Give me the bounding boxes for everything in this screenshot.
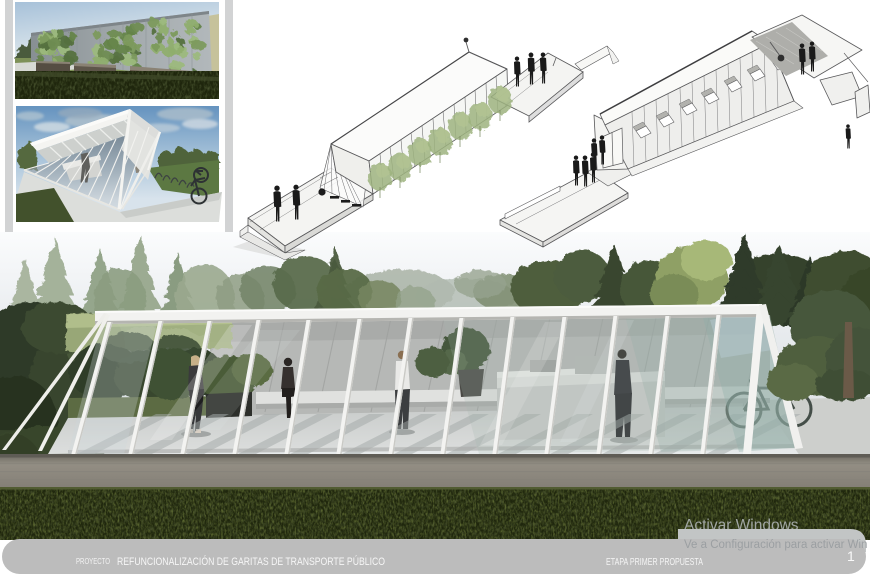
svg-text:PROYECTO: PROYECTO [76,556,110,566]
svg-text:1: 1 [847,548,855,564]
svg-text:REFUNCIONALIZACIÓN DE GARITAS: REFUNCIONALIZACIÓN DE GARITAS DE TRANSPO… [117,555,385,568]
svg-text:Ve a Configuración para activa: Ve a Configuración para activar Win [684,539,867,551]
svg-text:ETAPA PRIMER PROPUESTA: ETAPA PRIMER PROPUESTA [606,557,703,568]
